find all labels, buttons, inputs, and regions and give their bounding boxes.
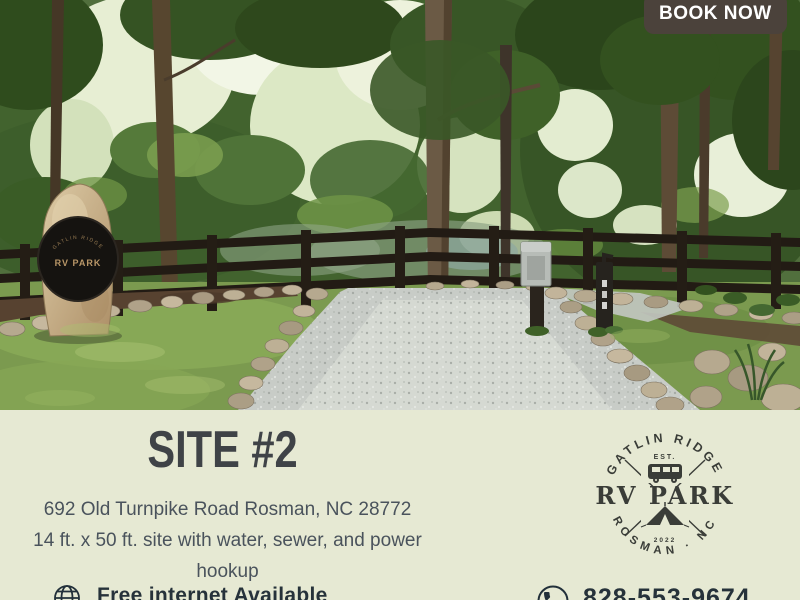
address-block: 692 Old Turnpike Road Rosman, NC 28772 1… <box>0 494 455 587</box>
footer-phone: 828-553-9674 <box>536 584 751 600</box>
globe-icon <box>52 583 82 600</box>
monument-plaque-label: RV PARK <box>55 258 102 268</box>
phone-number: 828-553-9674 <box>583 584 751 600</box>
rv-park-logo: GATLIN RIDGE ROSMAN · NC EST. RV PARK <box>578 411 752 585</box>
rv-park-flyer: GATLIN RIDGE RV PARK <box>0 0 800 600</box>
address-line: 692 Old Turnpike Road Rosman, NC 28772 <box>0 494 455 525</box>
book-now-button[interactable]: BOOK NOW <box>644 0 787 34</box>
site-title: SITE #2 <box>45 422 401 478</box>
site-photo: GATLIN RIDGE RV PARK <box>0 0 800 410</box>
internet-note: Free internet Available <box>97 584 328 600</box>
phone-icon <box>536 584 570 600</box>
logo-year: 2022 <box>654 537 676 544</box>
logo-est-label: EST. <box>654 454 677 461</box>
footer-internet: Free internet Available <box>52 583 328 600</box>
site-details: 14 ft. x 50 ft. site with water, sewer, … <box>0 525 455 587</box>
